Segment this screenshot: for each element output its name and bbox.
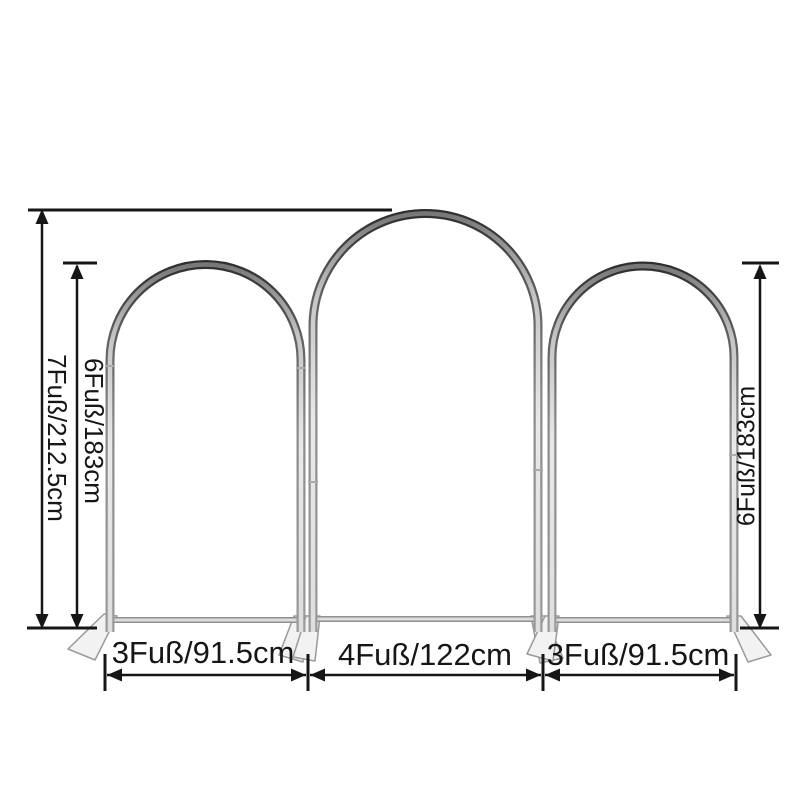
arch-frame-left — [110, 265, 301, 633]
dimension-label-width-right: 3Fuß/91.5cm — [547, 639, 730, 670]
stand-bottom-bars — [110, 619, 734, 620]
product-dimension-image: 7Fuß/212.5cm 6Fuß/183cm 6Fuß/183cm 3Fuß/… — [0, 0, 800, 800]
tube-joint-marks — [105, 366, 739, 482]
dimension-label-height-right: 6Fuß/183cm — [735, 386, 760, 526]
dimension-label-width-left: 3Fuß/91.5cm — [112, 637, 295, 668]
dimension-label-height-middle: 7Fuß/212.5cm — [44, 354, 70, 522]
arch-frame-right — [552, 266, 734, 632]
arch-frames — [105, 214, 739, 633]
dimension-label-width-middle: 4Fuß/122cm — [338, 639, 512, 670]
dimension-label-height-left: 6Fuß/183cm — [81, 358, 107, 504]
diagram-canvas — [0, 0, 800, 800]
dimension-line-width-left — [107, 669, 306, 682]
arch-frame-middle — [313, 214, 538, 633]
